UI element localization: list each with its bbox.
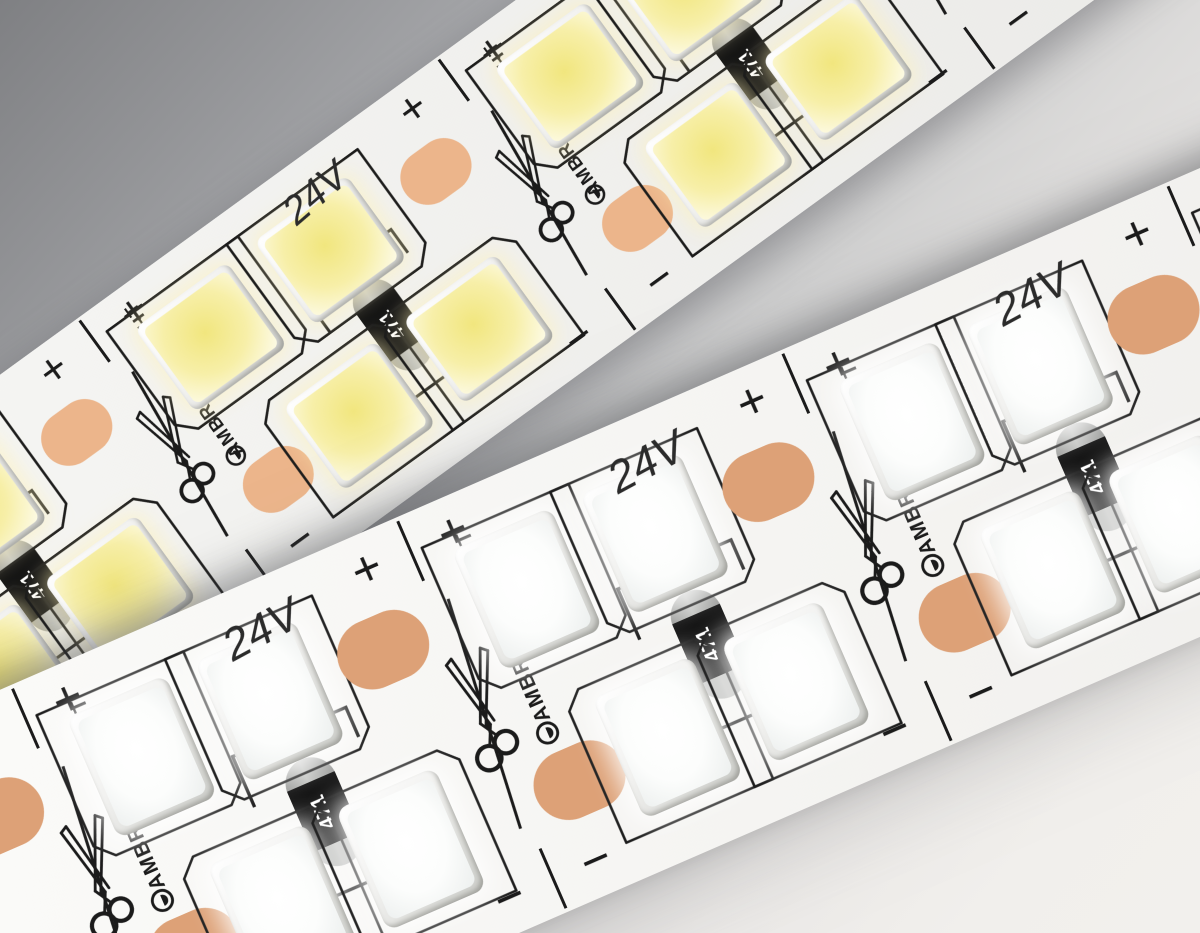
plus-mark: + <box>389 84 436 135</box>
plus-mark: + <box>1114 205 1161 262</box>
cut-edge-tick <box>963 27 995 70</box>
cut-edge-tick <box>923 681 951 741</box>
scene: ++−−24V AMBRELLA LIGHT 471++−−24V AMBREL… <box>0 0 1200 933</box>
plus-mark: + <box>343 540 390 597</box>
plus-mark: + <box>728 373 775 430</box>
copper-pad <box>950 0 1043 2</box>
minus-mark: − <box>871 701 918 758</box>
minus-mark: − <box>556 313 603 364</box>
minus-mark: − <box>636 254 683 305</box>
minus-mark: − <box>995 0 1042 45</box>
minus-mark: − <box>957 664 1004 721</box>
copper-pad <box>390 127 483 215</box>
minus-mark: − <box>572 831 619 888</box>
cut-edge-tick <box>603 288 635 331</box>
plus-mark: + <box>30 345 77 396</box>
minus-mark: − <box>486 869 533 926</box>
cut-edge-tick <box>538 848 566 908</box>
plus-mark: + <box>0 708 5 765</box>
copper-pad <box>30 388 123 476</box>
minus-mark: − <box>915 52 962 103</box>
